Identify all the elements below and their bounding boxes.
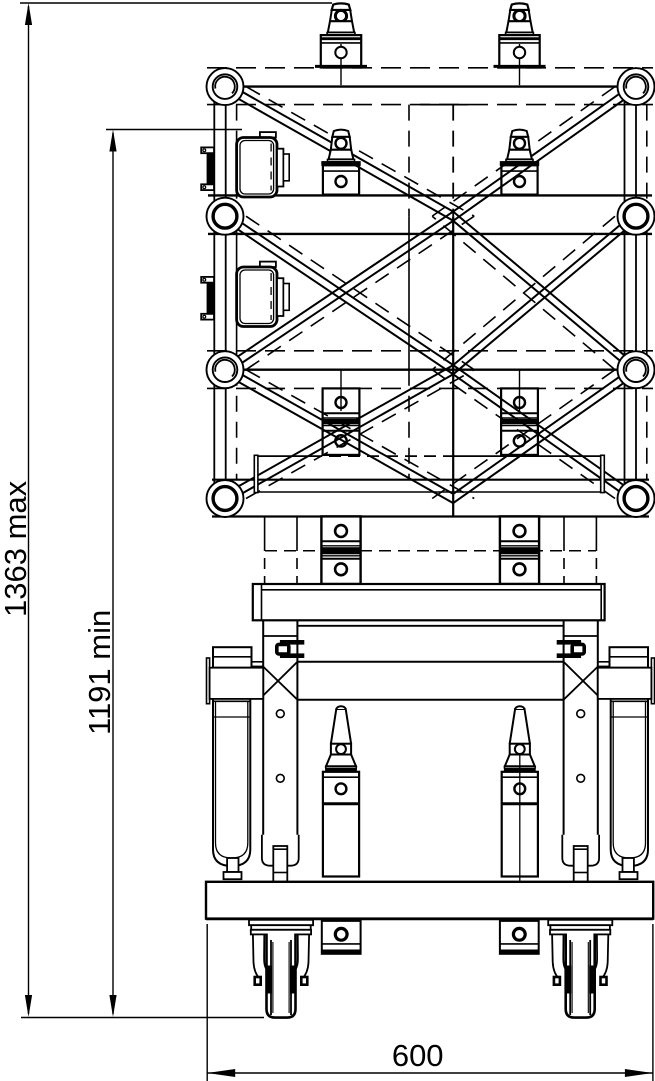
svg-text:1191 min: 1191 min — [82, 610, 117, 735]
svg-text:1363 max: 1363 max — [0, 480, 33, 617]
svg-text:600: 600 — [392, 1038, 444, 1073]
